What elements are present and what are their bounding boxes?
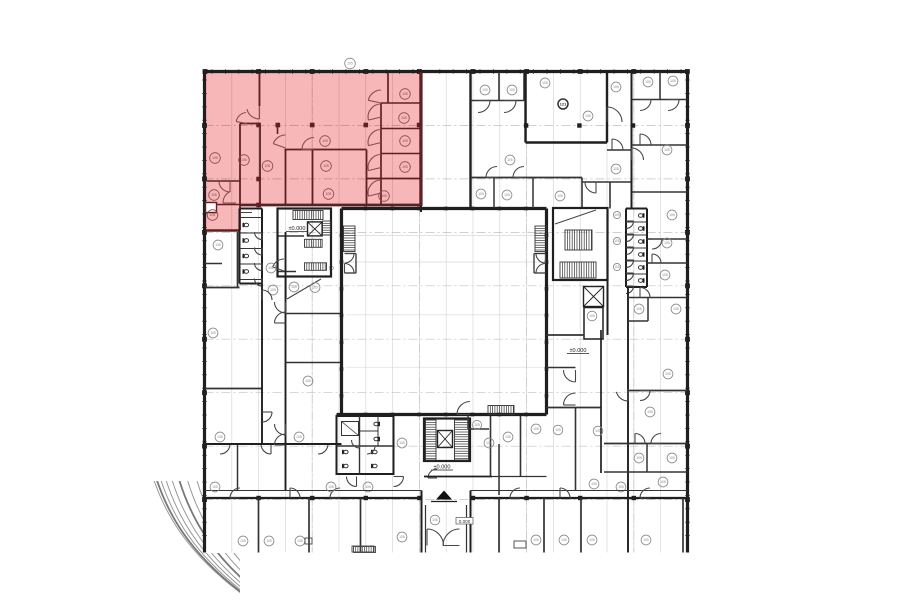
svg-text:105: 105: [613, 167, 619, 171]
svg-text:50: 50: [329, 266, 334, 271]
svg-text:105: 105: [297, 539, 303, 543]
svg-text:105: 105: [507, 158, 513, 162]
svg-text:105: 105: [323, 164, 329, 168]
svg-text:105: 105: [614, 213, 620, 217]
svg-text:105: 105: [504, 193, 510, 197]
svg-text:105: 105: [399, 441, 405, 445]
svg-text:105: 105: [210, 331, 216, 335]
svg-text:105: 105: [296, 435, 302, 439]
svg-text:105: 105: [669, 456, 675, 460]
svg-text:105: 105: [557, 194, 563, 198]
svg-text:105: 105: [402, 92, 408, 96]
svg-text:105: 105: [670, 79, 676, 83]
svg-text:105: 105: [589, 314, 595, 318]
svg-text:105: 105: [665, 372, 671, 376]
svg-text:105: 105: [241, 158, 247, 162]
svg-text:105: 105: [399, 535, 405, 539]
svg-text:105: 105: [212, 156, 218, 160]
svg-text:105: 105: [614, 265, 620, 269]
svg-text:105: 105: [647, 410, 653, 414]
svg-text:105: 105: [365, 485, 371, 489]
svg-text:105: 105: [589, 538, 595, 542]
svg-text:105: 105: [618, 485, 624, 489]
svg-text:105: 105: [268, 266, 274, 270]
svg-text:105: 105: [614, 239, 620, 243]
svg-text:105: 105: [211, 193, 217, 197]
svg-text:105: 105: [474, 423, 480, 427]
svg-text:105: 105: [215, 243, 221, 247]
svg-text:105: 105: [673, 307, 679, 311]
svg-text:105: 105: [585, 114, 591, 118]
svg-text:105: 105: [478, 192, 484, 196]
svg-text:105: 105: [636, 456, 642, 460]
svg-text:0.000: 0.000: [459, 519, 471, 524]
svg-text:105: 105: [402, 139, 408, 143]
svg-text:105: 105: [322, 139, 328, 143]
svg-text:105: 105: [533, 427, 539, 431]
svg-text:105: 105: [669, 213, 675, 217]
svg-text:±0.000: ±0.000: [288, 226, 305, 232]
svg-text:105: 105: [401, 116, 407, 120]
svg-text:105: 105: [312, 286, 318, 290]
svg-text:105: 105: [505, 435, 511, 439]
svg-text:105: 105: [217, 435, 223, 439]
svg-text:105: 105: [240, 539, 246, 543]
svg-text:105: 105: [326, 192, 332, 196]
svg-text:105: 105: [613, 85, 619, 89]
svg-text:105: 105: [643, 538, 649, 542]
svg-text:105: 105: [210, 213, 216, 217]
svg-text:105: 105: [533, 538, 539, 542]
svg-text:105: 105: [212, 485, 218, 489]
svg-text:105: 105: [662, 273, 668, 277]
svg-text:105: 105: [305, 379, 311, 383]
svg-text:105: 105: [270, 288, 276, 292]
svg-text:105: 105: [561, 538, 567, 542]
svg-text:105: 105: [660, 480, 666, 484]
svg-text:105: 105: [664, 241, 670, 245]
svg-text:105: 105: [402, 165, 408, 169]
svg-text:105: 105: [591, 482, 597, 486]
svg-text:105: 105: [265, 164, 271, 168]
svg-text:±0.000: ±0.000: [569, 348, 586, 354]
svg-text:105: 105: [636, 307, 642, 311]
svg-text:105: 105: [555, 428, 561, 432]
svg-text:105: 105: [664, 148, 670, 152]
svg-text:105: 105: [328, 485, 334, 489]
svg-text:105: 105: [645, 80, 651, 84]
svg-text:105: 105: [486, 441, 492, 445]
svg-text:105: 105: [347, 62, 353, 66]
svg-text:105: 105: [432, 518, 438, 522]
svg-text:105: 105: [595, 429, 601, 433]
svg-text:105: 105: [266, 539, 272, 543]
svg-text:105: 105: [482, 88, 488, 92]
svg-text:105: 105: [542, 81, 548, 85]
svg-text:105: 105: [291, 285, 297, 289]
svg-text:105: 105: [509, 88, 515, 92]
svg-text:105: 105: [381, 194, 387, 198]
svg-text:121: 121: [560, 102, 567, 107]
